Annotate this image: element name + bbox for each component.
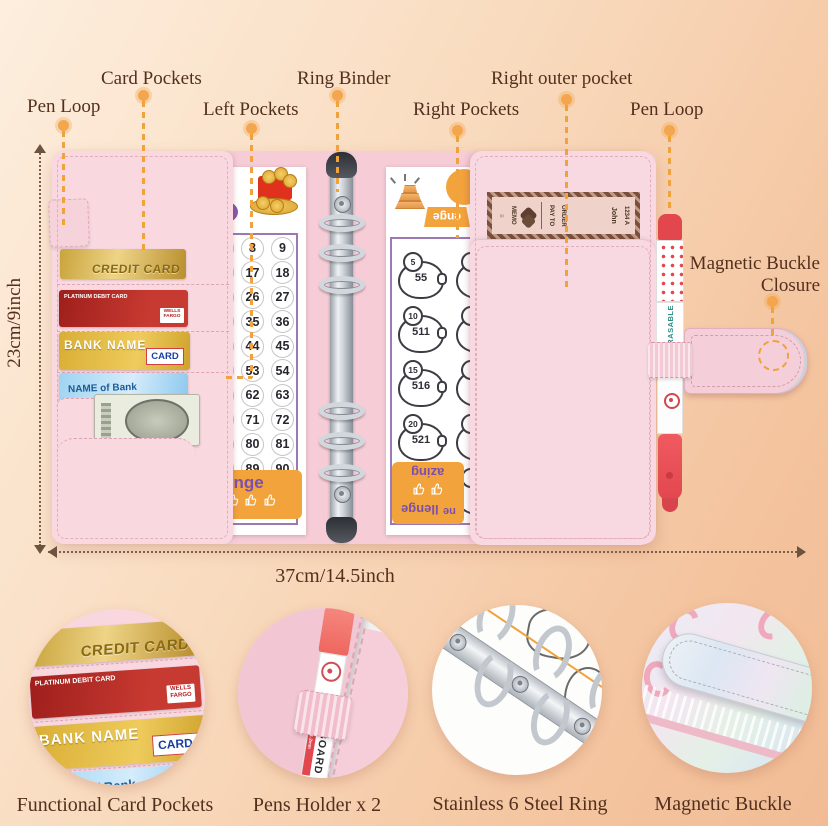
label-ring-binder: Ring Binder xyxy=(297,68,390,90)
spine-screw xyxy=(334,486,351,503)
amount: 516 xyxy=(400,380,442,392)
challenge-banner: enge xyxy=(224,470,302,519)
arrow-left-icon xyxy=(42,546,57,558)
height-dimension-line xyxy=(39,150,41,546)
debit-card-label: PLATINUM DEBIT CARD xyxy=(35,675,116,688)
piggy-bank-partial xyxy=(456,369,470,407)
brand-line: FARGO xyxy=(170,691,192,698)
ray xyxy=(404,174,406,181)
coin-icon xyxy=(283,174,297,188)
inset-card-stack: CREDIT CARD PLATINUM DEBIT CARD WELLS FA… xyxy=(29,609,205,785)
number-cell: 80 xyxy=(241,433,264,456)
binder-ring xyxy=(319,464,365,482)
check-memo: MEMO xyxy=(510,206,516,225)
money-pocket-flap xyxy=(56,438,196,539)
amount: 55 xyxy=(400,272,442,284)
challenge-tab-flipped: enge xyxy=(424,207,470,227)
check-name: John xyxy=(610,207,617,224)
binder-ring xyxy=(319,214,365,232)
ray xyxy=(390,177,396,184)
pen-lower-barrel xyxy=(657,376,683,434)
week-number: 10 xyxy=(403,306,423,326)
label-card-pockets: Card Pockets xyxy=(101,68,202,90)
bank-card: BANK NAME CARD xyxy=(59,332,190,370)
pen-tip xyxy=(662,498,678,512)
caption-card-pockets: Functional Card Pockets xyxy=(4,794,226,817)
credit-card-label: CREDIT CARD xyxy=(91,262,181,276)
height-dimension-label: 23cm/9inch xyxy=(4,278,26,368)
leader-line xyxy=(336,101,339,192)
arrow-up-icon xyxy=(34,138,46,153)
week-number xyxy=(461,306,470,326)
outer-pocket-flap xyxy=(470,239,656,545)
thumbs-up-icon xyxy=(263,494,277,511)
thumbs-up-icon xyxy=(430,483,444,500)
number-cell: 36 xyxy=(271,310,294,333)
piggy-bank: 15516 xyxy=(398,369,444,407)
check-pay-to: PAY TO xyxy=(548,205,554,226)
pen-loop-band xyxy=(293,689,353,741)
piggy-bank: 20521 xyxy=(398,423,444,461)
inset-steel-rings xyxy=(432,605,602,775)
week-number xyxy=(461,360,470,380)
pen-cap xyxy=(318,608,356,658)
number-cell: 9 xyxy=(271,237,294,260)
label-right-pockets: Right Pockets xyxy=(413,99,519,121)
magnetic-buckle-strap xyxy=(684,328,808,394)
caption-pens-holder: Pens Holder x 2 xyxy=(227,794,407,817)
leader-dot xyxy=(58,120,69,131)
label-left-pockets: Left Pockets xyxy=(203,99,299,121)
debit-card: PLATINUM DEBIT CARD WELLS FARGO xyxy=(59,290,188,327)
pen-loop-tab xyxy=(48,198,90,247)
week-number xyxy=(461,252,470,272)
brand-line: FARGO xyxy=(163,314,180,319)
blue-card-label: NAME of Bank xyxy=(46,776,137,785)
leader-dot xyxy=(767,296,778,307)
coin-icon xyxy=(270,199,284,213)
credit-card: CREDIT CARD xyxy=(60,249,186,279)
check-in-pocket: ≡ MEMO PAY TO ORDER John 1234 A xyxy=(487,192,640,239)
leader-line xyxy=(250,134,253,378)
thumbs-up-icon xyxy=(412,483,426,500)
leader-dot xyxy=(332,90,343,101)
label-right-outer-pocket: Right outer pocket xyxy=(491,68,632,90)
spine-screw xyxy=(334,196,351,213)
number-cell: 18 xyxy=(271,261,294,284)
ring-assembly xyxy=(432,605,602,775)
week-number: 20 xyxy=(403,414,423,434)
thumbs-up-icon xyxy=(244,494,258,511)
pen-grip xyxy=(658,434,682,500)
leader-dot xyxy=(561,94,572,105)
debit-card-label: PLATINUM DEBIT CARD xyxy=(64,294,127,300)
check-divider xyxy=(541,202,542,228)
leader-dot xyxy=(664,125,675,136)
leader-line xyxy=(62,131,65,228)
ring-binder-mechanism xyxy=(318,151,368,544)
leader-dot xyxy=(138,90,149,101)
challenge-banner-flipped: azing llenge ne xyxy=(392,462,464,524)
caption-magnetic-buckle: Magnetic Buckle xyxy=(633,793,813,816)
caption-steel-ring: Stainless 6 Steel Ring xyxy=(430,793,610,816)
check-address: 1234 A xyxy=(623,206,629,225)
leader-line xyxy=(456,136,459,238)
erasable-pen: ERASABLE xyxy=(652,214,696,514)
product-annotation-image: Pen Loop Card Pockets Left Pockets Ring … xyxy=(0,0,828,826)
magnet-target-circle xyxy=(758,340,789,371)
spine-screw xyxy=(446,631,470,655)
bank-brand: WELLS FARGO xyxy=(160,308,184,323)
bank-card-label: BANK NAME xyxy=(64,338,146,352)
amount: 511 xyxy=(400,326,442,338)
piggy-bank: 10511 xyxy=(398,315,444,353)
inset-pens-holder: ET 1-2mm BOARD xyxy=(238,608,408,778)
buckle-assembly xyxy=(642,603,812,773)
week-number: 5 xyxy=(403,252,423,272)
label-pen-loop-right: Pen Loop xyxy=(630,99,703,121)
inset-card-pockets: CREDIT CARD PLATINUM DEBIT CARD WELLS FA… xyxy=(29,609,205,785)
week-number xyxy=(461,414,470,434)
card-badge: CARD xyxy=(152,732,199,756)
number-cell: 72 xyxy=(271,408,294,431)
amount: 521 xyxy=(400,434,442,446)
label-magnetic-buckle-line2: Closure xyxy=(761,275,820,296)
width-dimension-line xyxy=(48,551,800,553)
week-number: 15 xyxy=(403,360,423,380)
leader-line xyxy=(142,101,145,252)
leader-line xyxy=(771,307,774,337)
piggy-bank-partial xyxy=(456,315,470,353)
check-face: ≡ MEMO PAY TO ORDER John 1234 A xyxy=(492,197,635,234)
piggy-bank-partial xyxy=(456,261,470,299)
pen-dotted-barrel xyxy=(656,240,684,302)
banner-text: llenge xyxy=(401,502,439,517)
banner-text: azing xyxy=(411,465,444,480)
number-cell: 27 xyxy=(271,286,294,309)
binder-ring xyxy=(319,432,365,450)
banner-text: ne xyxy=(443,505,456,517)
gold-bars-illustration xyxy=(390,177,430,209)
card-badge: CARD xyxy=(146,348,184,365)
spine-cap-bottom xyxy=(326,517,357,543)
piggy-bank-partial xyxy=(456,423,470,461)
leader-line xyxy=(226,376,252,379)
pen-cap xyxy=(658,214,682,240)
leader-dot xyxy=(246,123,257,134)
binder-ring xyxy=(319,244,365,262)
label-pen-loop-left: Pen Loop xyxy=(27,96,100,118)
pen-logo-icon xyxy=(664,393,680,409)
number-cell: 45 xyxy=(271,335,294,358)
bank-brand: WELLS FARGO xyxy=(166,684,195,704)
pen-loop-band xyxy=(648,342,692,378)
number-cell: 62 xyxy=(241,384,264,407)
arrow-right-icon xyxy=(797,546,812,558)
spine-cap-top xyxy=(326,152,357,178)
number-cell: 81 xyxy=(271,433,294,456)
pocket-stitch xyxy=(57,284,229,285)
binder-ring xyxy=(319,276,365,294)
bank-card-label: BANK NAME xyxy=(38,726,140,750)
binder-ring xyxy=(319,402,365,420)
width-dimension-label: 37cm/14.5inch xyxy=(240,565,430,588)
leader-line xyxy=(565,105,568,288)
spine-screw xyxy=(571,714,595,738)
label-magnetic-buckle-line1: Magnetic Buckle xyxy=(690,253,820,274)
gold-coins-illustration xyxy=(250,172,302,224)
leader-line xyxy=(668,136,671,212)
check-logo-shape xyxy=(519,206,537,224)
credit-card-label: CREDIT CARD xyxy=(81,636,190,661)
inset-magnetic-buckle xyxy=(642,603,812,773)
coin-icon xyxy=(256,196,270,210)
number-cell: 54 xyxy=(271,359,294,382)
piggy-bank: 555 xyxy=(398,261,444,299)
right-cover-outer-pocket: ≡ MEMO PAY TO ORDER John 1234 A xyxy=(470,151,656,544)
number-cell: 63 xyxy=(271,384,294,407)
number-cell: 71 xyxy=(241,408,264,431)
ray xyxy=(414,177,420,184)
leader-dot xyxy=(452,125,463,136)
